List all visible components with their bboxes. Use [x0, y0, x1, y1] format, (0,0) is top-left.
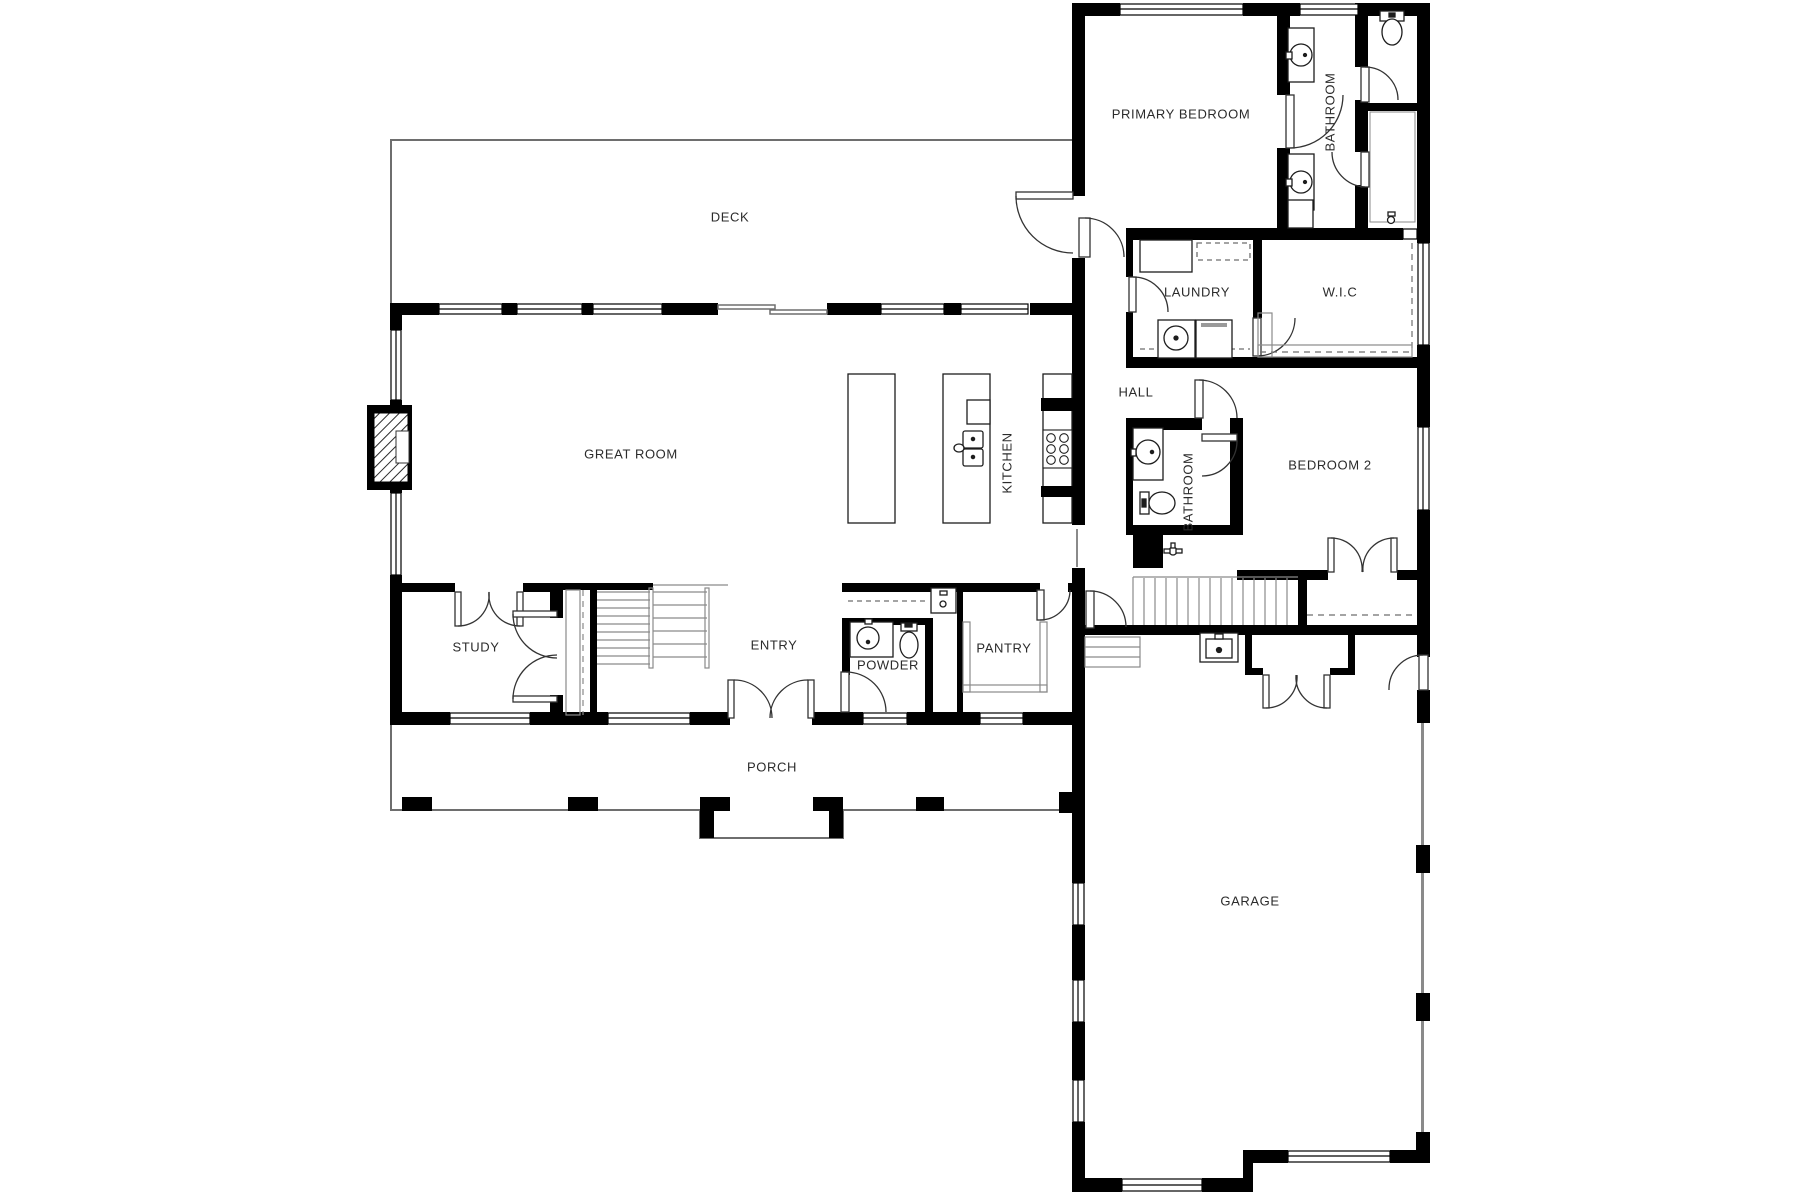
- room-label-great-room: GREAT ROOM: [584, 447, 678, 462]
- shower-valve-icon: [1388, 217, 1395, 224]
- powder-fixtures: [848, 588, 956, 658]
- room-label-pantry: PANTRY: [976, 641, 1031, 656]
- sink-icon: [850, 619, 893, 657]
- garage-right-wall: [1416, 723, 1430, 1152]
- floor-plan-drawing: [0, 0, 1800, 1200]
- room-label-kitchen: KITCHEN: [1000, 432, 1015, 493]
- dryer-icon: [1196, 320, 1232, 358]
- primary-bath-fixtures: [1286, 11, 1415, 228]
- room-label-garage: GARAGE: [1220, 894, 1279, 909]
- water-heater-icon: [931, 588, 956, 613]
- floor-plan-canvas: DECK PRIMARY BEDROOM BATHROOM LAUNDRY W.…: [0, 0, 1800, 1200]
- exterior-walls: [390, 3, 1430, 1192]
- laundry-cabinet: [1140, 240, 1192, 272]
- room-label-primary-bathroom: BATHROOM: [1323, 73, 1338, 152]
- porch-outline: [391, 725, 1073, 838]
- range-icon: [1043, 430, 1072, 468]
- shower-stall: [1370, 112, 1415, 224]
- laundry-upper-cabinet: [1197, 243, 1250, 260]
- room-label-hall-bathroom: BATHROOM: [1181, 453, 1196, 532]
- vanity-sink-icon: [1286, 28, 1314, 82]
- toilet-icon: [900, 623, 918, 658]
- main-staircase: [1133, 577, 1298, 625]
- room-label-entry: ENTRY: [751, 638, 798, 653]
- pantry-shelves: [963, 622, 1047, 692]
- kitchen-fixtures: [848, 374, 1077, 523]
- porch-posts: [402, 792, 1073, 838]
- room-label-wic: W.I.C: [1323, 285, 1358, 300]
- sliding-door: [718, 305, 827, 314]
- dishwasher-icon: [967, 400, 990, 424]
- sink-icon: [1131, 428, 1163, 480]
- washer-icon: [1158, 320, 1195, 358]
- fireplace: [367, 405, 412, 490]
- room-label-study: STUDY: [452, 640, 499, 655]
- room-label-bedroom-2: BEDROOM 2: [1288, 458, 1371, 473]
- island-1: [848, 374, 895, 523]
- wic-shelving: [1258, 243, 1412, 357]
- cased-opening: [1076, 529, 1078, 567]
- faucet-icon: [1164, 543, 1182, 555]
- room-label-primary-bedroom: PRIMARY BEDROOM: [1112, 107, 1251, 122]
- room-label-powder: POWDER: [857, 658, 919, 673]
- toilet-icon: [1380, 11, 1404, 45]
- room-label-hall: HALL: [1119, 385, 1154, 400]
- linen-cabinet: [1288, 200, 1313, 228]
- utility-sink-icon: [1200, 633, 1238, 662]
- garage-entry-steps: [1085, 637, 1140, 667]
- toilet-icon: [1140, 492, 1175, 514]
- room-label-porch: PORCH: [747, 760, 797, 775]
- windows: [391, 4, 1429, 1191]
- room-label-deck: DECK: [711, 210, 750, 225]
- room-label-laundry: LAUNDRY: [1164, 285, 1230, 300]
